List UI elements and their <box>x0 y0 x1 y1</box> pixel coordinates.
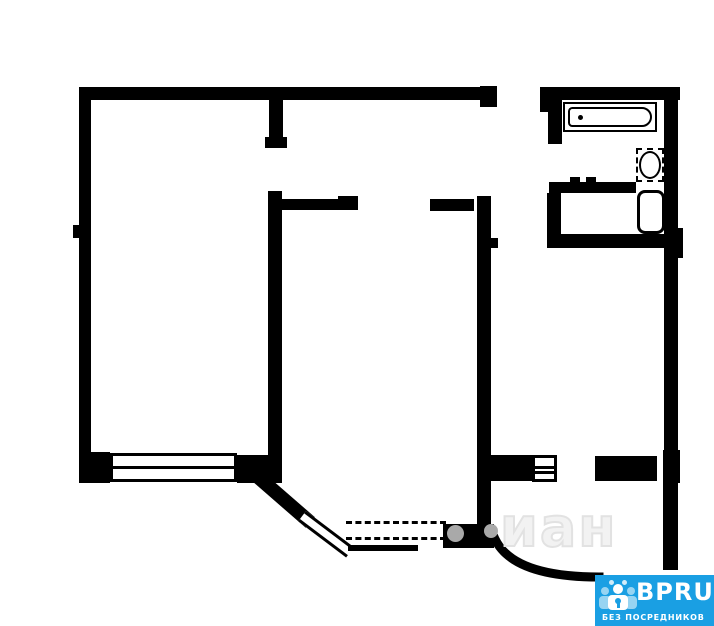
wall-top-main <box>79 87 497 100</box>
wall-hall-bottom-right <box>595 456 657 481</box>
vent-line <box>535 471 554 474</box>
wall-living-right <box>477 196 491 548</box>
window-mullion <box>113 466 234 469</box>
door-hinge-dot-right <box>484 524 498 538</box>
toilet-icon <box>637 190 665 234</box>
icon-head-center <box>613 584 623 594</box>
wall-right <box>664 87 678 483</box>
people-group-with-keyhole-icon <box>601 580 637 610</box>
bpru-logo: BPRU БЕЗ ПОСРЕДНИКОВ <box>595 575 714 626</box>
wall-wc-bottom <box>547 234 666 248</box>
ventilation-box <box>532 455 557 482</box>
wall-bathroom-left-stub <box>548 100 562 144</box>
vent-line <box>535 466 554 469</box>
door-hinge-dot-left <box>447 525 464 542</box>
wall-living-top-right <box>430 199 474 211</box>
sink-bowl <box>639 151 661 179</box>
logo-tagline: БЕЗ ПОСРЕДНИКОВ <box>602 613 705 622</box>
bathtub-drain <box>578 115 583 120</box>
wall-top-end-pillar <box>480 86 497 107</box>
watermark: иан <box>500 496 618 559</box>
door-frame-tick <box>586 177 596 183</box>
wall-left-bump <box>73 225 80 238</box>
wall-mid-stub-cap <box>265 137 287 148</box>
wall-living-top-thick-end <box>338 196 358 210</box>
icon-head-right <box>627 587 635 595</box>
wall-bathroom-top <box>540 87 680 100</box>
wall-right-lower <box>663 483 678 570</box>
wall-mid <box>268 191 282 457</box>
wall-left <box>79 87 91 455</box>
bathtub-icon <box>563 102 657 132</box>
sink-icon <box>636 148 664 182</box>
floor-plan: иан BPRU БЕЗ ПОСРЕДНИКОВ <box>0 0 714 626</box>
window-left-room <box>110 453 237 482</box>
bay-window-horizontal <box>346 521 446 540</box>
wall-right-bump <box>677 228 683 258</box>
icon-dot <box>609 580 614 585</box>
icon-head-left <box>601 587 609 595</box>
wall-living-right-tick <box>491 238 498 248</box>
keyhole-stem <box>617 602 620 608</box>
wall-mid-stub-top <box>269 100 283 140</box>
wall-hall-bottom-left <box>491 455 532 481</box>
wall-bath-wc-separator <box>549 182 636 193</box>
door-frame-tick <box>570 177 580 183</box>
wall-left-foot <box>79 452 110 483</box>
wall-right-foot <box>663 450 680 483</box>
logo-name: BPRU <box>636 578 714 606</box>
icon-body-center <box>608 595 628 610</box>
bay-window-sill <box>348 545 418 551</box>
icon-dot <box>622 580 627 585</box>
